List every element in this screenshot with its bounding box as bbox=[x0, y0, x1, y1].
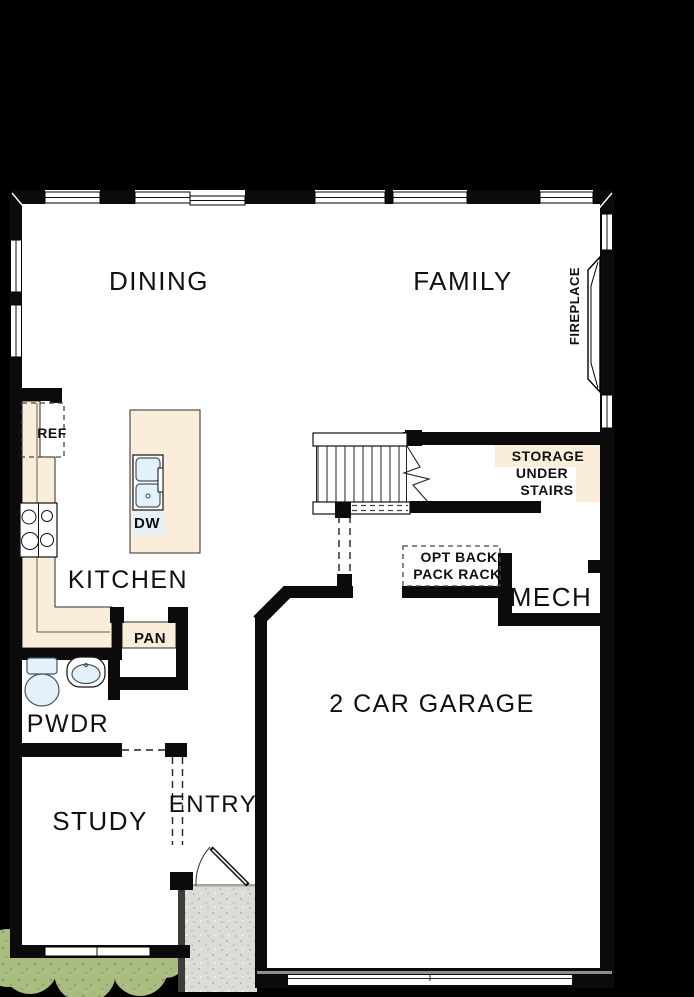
opt-rack-label-line2: PACK RACK bbox=[413, 566, 500, 582]
room-label-study: STUDY bbox=[52, 806, 148, 836]
garage-door bbox=[257, 971, 612, 985]
window bbox=[45, 947, 150, 956]
room-label-kitchen: KITCHEN bbox=[68, 566, 188, 594]
floor-plan: DINING FAMILY KITCHEN PWDR STUDY ENTRY M… bbox=[0, 0, 694, 997]
window bbox=[540, 192, 593, 203]
room-label-garage: 2 CAR GARAGE bbox=[329, 690, 535, 718]
window bbox=[190, 196, 245, 205]
room-label-dining: DINING bbox=[109, 266, 209, 296]
window bbox=[602, 214, 613, 250]
pantry-label: PAN bbox=[134, 630, 166, 647]
window bbox=[11, 305, 22, 357]
sink-fixture bbox=[67, 657, 105, 687]
storage-label-line1: STORAGE bbox=[512, 448, 584, 464]
fireplace-bay bbox=[588, 257, 600, 392]
room-label-family: FAMILY bbox=[413, 266, 513, 296]
floor-plan-page: DINING FAMILY KITCHEN PWDR STUDY ENTRY M… bbox=[0, 0, 694, 997]
fireplace-label: FIREPLACE bbox=[567, 267, 582, 345]
window bbox=[602, 395, 613, 428]
storage-label-line2: UNDER bbox=[516, 465, 568, 481]
dishwasher-label: DW bbox=[134, 515, 160, 532]
window bbox=[135, 192, 190, 203]
window bbox=[45, 192, 100, 203]
stove-fixture bbox=[20, 503, 57, 557]
window bbox=[393, 192, 467, 203]
opt-rack-label-line1: OPT BACK bbox=[420, 549, 497, 565]
toilet-fixture bbox=[25, 658, 59, 706]
storage-label-line3: STAIRS bbox=[520, 482, 573, 498]
refrigerator-label: REF bbox=[37, 425, 67, 441]
window bbox=[315, 192, 385, 203]
room-label-mech: MECH bbox=[510, 582, 593, 612]
room-label-entry: ENTRY bbox=[169, 791, 257, 818]
room-label-pwdr: PWDR bbox=[27, 710, 109, 738]
window bbox=[11, 240, 22, 292]
entry-porch bbox=[178, 884, 257, 992]
